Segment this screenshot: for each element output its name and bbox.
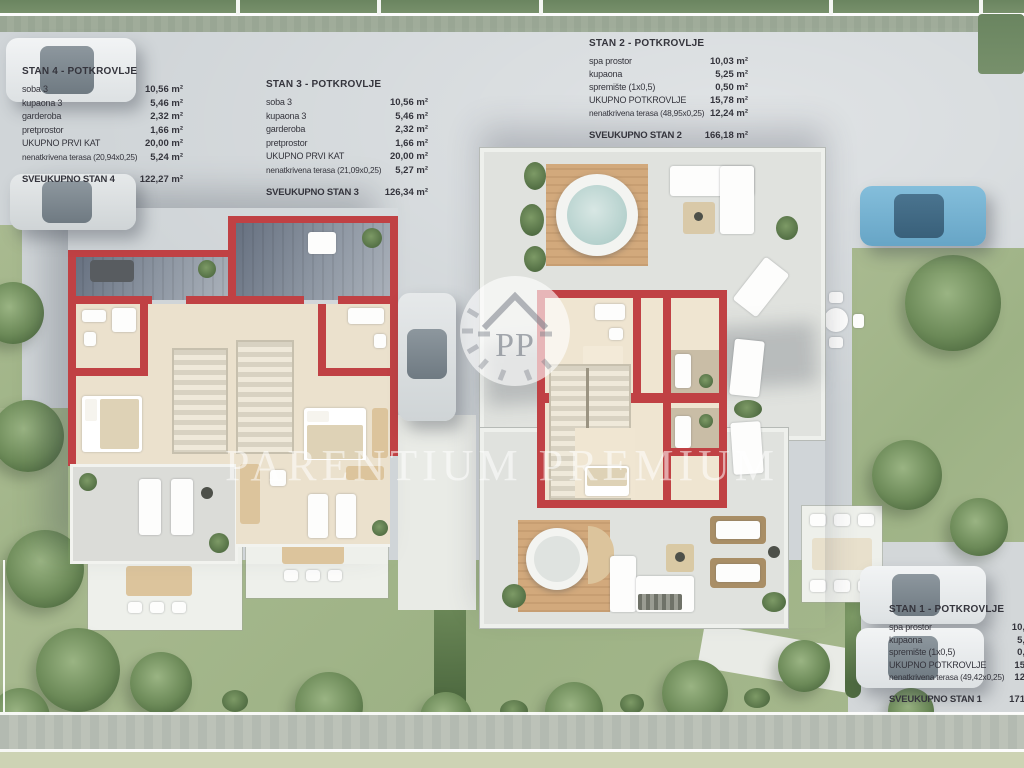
wall	[318, 304, 326, 376]
terrace-plant	[372, 520, 388, 536]
chair	[128, 602, 142, 613]
bottom-lawn	[0, 752, 1024, 768]
total-value: 122,27 m²	[136, 174, 183, 185]
wall	[76, 368, 140, 376]
planting	[502, 584, 526, 608]
chair	[853, 314, 864, 328]
cushion	[716, 564, 760, 582]
cushion	[716, 521, 760, 539]
area-row: nenatkrivena terasa (49,42x0,25) 12	[889, 672, 1024, 685]
area-row: soba 3 10,56 m²	[266, 97, 428, 111]
wall	[318, 368, 390, 376]
tree	[872, 440, 942, 510]
total-value: 171	[1005, 694, 1024, 705]
row-value: 10,56 m²	[141, 84, 183, 95]
row-value: 15,78 m²	[706, 95, 748, 106]
row-value: 5,46 m²	[146, 98, 183, 109]
row-label: UKUPNO PRVI KAT	[266, 151, 344, 161]
tree	[778, 640, 830, 692]
planting	[734, 400, 762, 418]
area-row: garderoba 2,32 m²	[22, 111, 183, 125]
area-total-row: SVEUKUPNO STAN 3 126,34 m²	[266, 187, 428, 201]
row-value: 2,32 m²	[146, 111, 183, 122]
row-value: 5,	[1013, 635, 1024, 646]
car-glass	[894, 194, 944, 238]
deck-table	[90, 260, 134, 282]
area-row: UKUPNO PRVI KAT 20,00 m²	[266, 151, 428, 165]
deck-chair	[308, 232, 336, 254]
site-plan-render: { "watermark": { "text": "PARENTIUM PREM…	[0, 0, 1024, 768]
row-label: nenatkrivena terasa (49,42x0,25)	[889, 672, 1004, 682]
area-table-stan4: STAN 4 - POTKROVLJE soba 3 10,56 m² kupa…	[22, 66, 183, 188]
chair	[834, 514, 850, 526]
wall	[68, 250, 76, 466]
total-value: 166,18 m²	[701, 130, 748, 141]
fence-post	[829, 0, 833, 15]
row-value: 5,46 m²	[391, 111, 428, 122]
left-fence-line	[3, 560, 5, 712]
hot-tub-water	[567, 185, 627, 245]
row-value: 5,27 m²	[391, 165, 428, 176]
area-row: pretprostor 1,66 m²	[22, 125, 183, 139]
shower	[112, 308, 136, 332]
tree	[36, 628, 120, 712]
planting	[520, 204, 544, 236]
area-row: spremište (1x0,5) 0,50 m²	[589, 82, 748, 95]
row-value: 5,25 m²	[711, 69, 748, 80]
bottom-road	[0, 715, 1024, 749]
watermark-logo-svg: PP	[456, 272, 574, 390]
top-road	[0, 16, 1024, 32]
row-label: kupaona	[889, 635, 922, 645]
area-row: nenatkrivena terasa (48,95x0,25) 12,24 m…	[589, 108, 748, 121]
total-label: SVEUKUPNO STAN 1	[889, 694, 982, 705]
area-total-row: SVEUKUPNO STAN 4 122,27 m²	[22, 174, 183, 188]
fence-post	[979, 0, 983, 15]
planting	[776, 216, 798, 240]
sun-lounger	[336, 494, 356, 538]
area-row: kupaona 3 5,46 m²	[22, 98, 183, 112]
terrace-plant	[79, 473, 97, 491]
fence-post	[236, 0, 240, 15]
area-row: UKUPNO PRVI KAT 20,00 m²	[22, 138, 183, 152]
area-row: kupaona 5,	[889, 635, 1024, 648]
total-label: SVEUKUPNO STAN 4	[22, 174, 115, 185]
row-label: kupaona	[589, 69, 622, 79]
row-label: UKUPNO PRVI KAT	[22, 138, 100, 148]
row-label: soba 3	[266, 97, 292, 107]
area-row: spa prostor 10,03 m²	[589, 56, 748, 69]
area-row: pretprostor 1,66 m²	[266, 138, 428, 152]
panel-title: STAN 4 - POTKROVLJE	[22, 66, 183, 77]
deck-plant	[362, 228, 382, 248]
row-label: spa prostor	[889, 622, 932, 632]
plant	[699, 414, 713, 428]
row-label: garderoba	[266, 124, 305, 134]
area-row: kupaona 3 5,46 m²	[266, 111, 428, 125]
bench	[675, 354, 691, 388]
wall	[68, 250, 232, 257]
area-row: spremište (1x0,5) 0,	[889, 647, 1024, 660]
row-value: 12	[1010, 672, 1024, 683]
area-row: nenatkrivena terasa (20,94x0,25) 5,24 m²	[22, 152, 183, 166]
lounge-chair	[710, 558, 766, 588]
row-value: 20,00 m²	[141, 138, 183, 149]
row-label: nenatkrivena terasa (48,95x0,25)	[589, 108, 704, 118]
side-table	[768, 546, 780, 558]
corner-hedge	[978, 14, 1024, 74]
wall	[232, 216, 398, 223]
toilet	[374, 334, 386, 348]
row-label: pretprostor	[266, 138, 307, 148]
row-value: 1,66 m²	[146, 125, 183, 136]
planting	[524, 162, 546, 190]
watermark-logo: PP	[456, 272, 574, 390]
car-top-view-blue	[860, 186, 986, 246]
chair	[306, 570, 320, 581]
bush	[620, 694, 644, 714]
sauna-room	[671, 350, 719, 393]
car-top-view-vertical	[398, 293, 456, 421]
bathtub	[595, 304, 625, 320]
tree	[905, 255, 1001, 351]
row-value: 10,56 m²	[386, 97, 428, 108]
row-label: UKUPNO POTKROVLJE	[589, 95, 686, 105]
wall	[633, 298, 641, 393]
chair	[284, 570, 298, 581]
bathtub	[348, 308, 384, 324]
area-row: kupaona 5,25 m²	[589, 69, 748, 82]
panel-title: STAN 2 - POTKROVLJE	[589, 38, 748, 49]
sun-lounger	[729, 339, 765, 398]
blanket	[100, 399, 139, 449]
planting	[524, 246, 546, 272]
toilet	[84, 332, 96, 346]
area-row: garderoba 2,32 m²	[266, 124, 428, 138]
top-hedge	[0, 0, 1024, 13]
chair	[172, 602, 186, 613]
row-label: nenatkrivena terasa (21,09x0,25)	[266, 165, 381, 175]
cabinet	[610, 556, 636, 612]
row-label: pretprostor	[22, 125, 63, 135]
row-label: spa prostor	[589, 56, 632, 66]
chair	[829, 292, 843, 303]
coffee-table	[694, 212, 703, 221]
sun-lounger	[308, 494, 328, 538]
area-total-row: SVEUKUPNO STAN 2 166,18 m²	[589, 130, 748, 144]
sun-lounger	[171, 479, 193, 535]
chair	[834, 580, 850, 592]
hot-tub-lower-water	[534, 536, 580, 582]
bush	[222, 690, 248, 712]
fence-post	[539, 0, 543, 15]
panel-title: STAN 3 - POTKROVLJE	[266, 79, 428, 90]
row-label: soba 3	[22, 84, 48, 94]
pillow	[85, 399, 97, 421]
pillow	[307, 411, 329, 422]
row-label: nenatkrivena terasa (20,94x0,25)	[22, 152, 137, 162]
row-label: spremište (1x0,5)	[889, 647, 955, 657]
row-value: 0,50 m²	[711, 82, 748, 93]
row-label: spremište (1x0,5)	[589, 82, 655, 92]
area-table-stan1: STAN 1 - POTKROVLJE spa prostor 10, kupa…	[889, 604, 1024, 706]
wall	[68, 296, 152, 304]
wall	[140, 304, 148, 376]
lower-terrace-left-unit	[70, 464, 238, 564]
row-value: 2,32 m²	[391, 124, 428, 135]
area-row: UKUPNO POTKROVLJE 15	[889, 660, 1024, 673]
dining-table	[126, 566, 192, 596]
row-value: 0,	[1013, 647, 1024, 658]
fence-post	[377, 0, 381, 15]
round-table	[824, 308, 848, 332]
sofa	[720, 166, 754, 234]
staircase-left-unit	[172, 348, 228, 454]
bush	[744, 688, 770, 708]
row-label: kupaona 3	[266, 111, 306, 121]
row-label: kupaona 3	[22, 98, 62, 108]
lounge-chair	[710, 516, 766, 544]
wall	[338, 296, 398, 304]
logo-monogram: PP	[495, 327, 535, 364]
area-total-row: SVEUKUPNO STAN 1 171	[889, 694, 1024, 707]
row-value: 20,00 m²	[386, 151, 428, 162]
total-label: SVEUKUPNO STAN 3	[266, 187, 359, 198]
panel-title: STAN 1 - POTKROVLJE	[889, 604, 1024, 615]
row-value: 1,66 m²	[391, 138, 428, 149]
area-table-stan3: STAN 3 - POTKROVLJE soba 3 10,56 m² kupa…	[266, 79, 428, 201]
area-row: spa prostor 10,	[889, 622, 1024, 635]
building-left	[68, 208, 398, 564]
row-label: garderoba	[22, 111, 61, 121]
sun-lounger	[139, 479, 161, 535]
row-value: 10,03 m²	[706, 56, 748, 67]
row-label: UKUPNO POTKROVLJE	[889, 660, 986, 670]
terrace-plant	[209, 533, 229, 553]
chair	[829, 337, 843, 348]
wall	[186, 296, 304, 304]
chair	[858, 514, 874, 526]
wall	[390, 216, 398, 456]
brazier	[675, 552, 685, 562]
row-value: 15	[1010, 660, 1024, 671]
plant	[699, 374, 713, 388]
tree	[950, 498, 1008, 556]
row-value: 12,24 m²	[706, 108, 748, 119]
area-row: UKUPNO POTKROVLJE 15,78 m²	[589, 95, 748, 108]
toilet	[609, 328, 623, 340]
chair	[328, 570, 342, 581]
area-row: nenatkrivena terasa (21,09x0,25) 5,27 m²	[266, 165, 428, 179]
fire-bowl	[201, 487, 213, 499]
chair	[150, 602, 164, 613]
area-table-stan2: STAN 2 - POTKROVLJE spa prostor 10,03 m²…	[589, 38, 748, 144]
deck-plant	[198, 260, 216, 278]
total-value: 126,34 m²	[381, 187, 428, 198]
bathroom-sink	[82, 310, 106, 322]
row-value: 5,24 m²	[146, 152, 183, 163]
staircase-right-unit	[236, 340, 294, 454]
total-label: SVEUKUPNO STAN 2	[589, 130, 682, 141]
planting	[762, 592, 786, 612]
row-value: 10,	[1008, 622, 1024, 633]
watermark-text: PARENTIUM PREMIUM	[225, 440, 779, 491]
area-row: soba 3 10,56 m²	[22, 84, 183, 98]
car-glass	[407, 329, 447, 379]
bed	[82, 396, 142, 452]
tree	[130, 652, 192, 714]
slat-chairs	[638, 594, 682, 610]
